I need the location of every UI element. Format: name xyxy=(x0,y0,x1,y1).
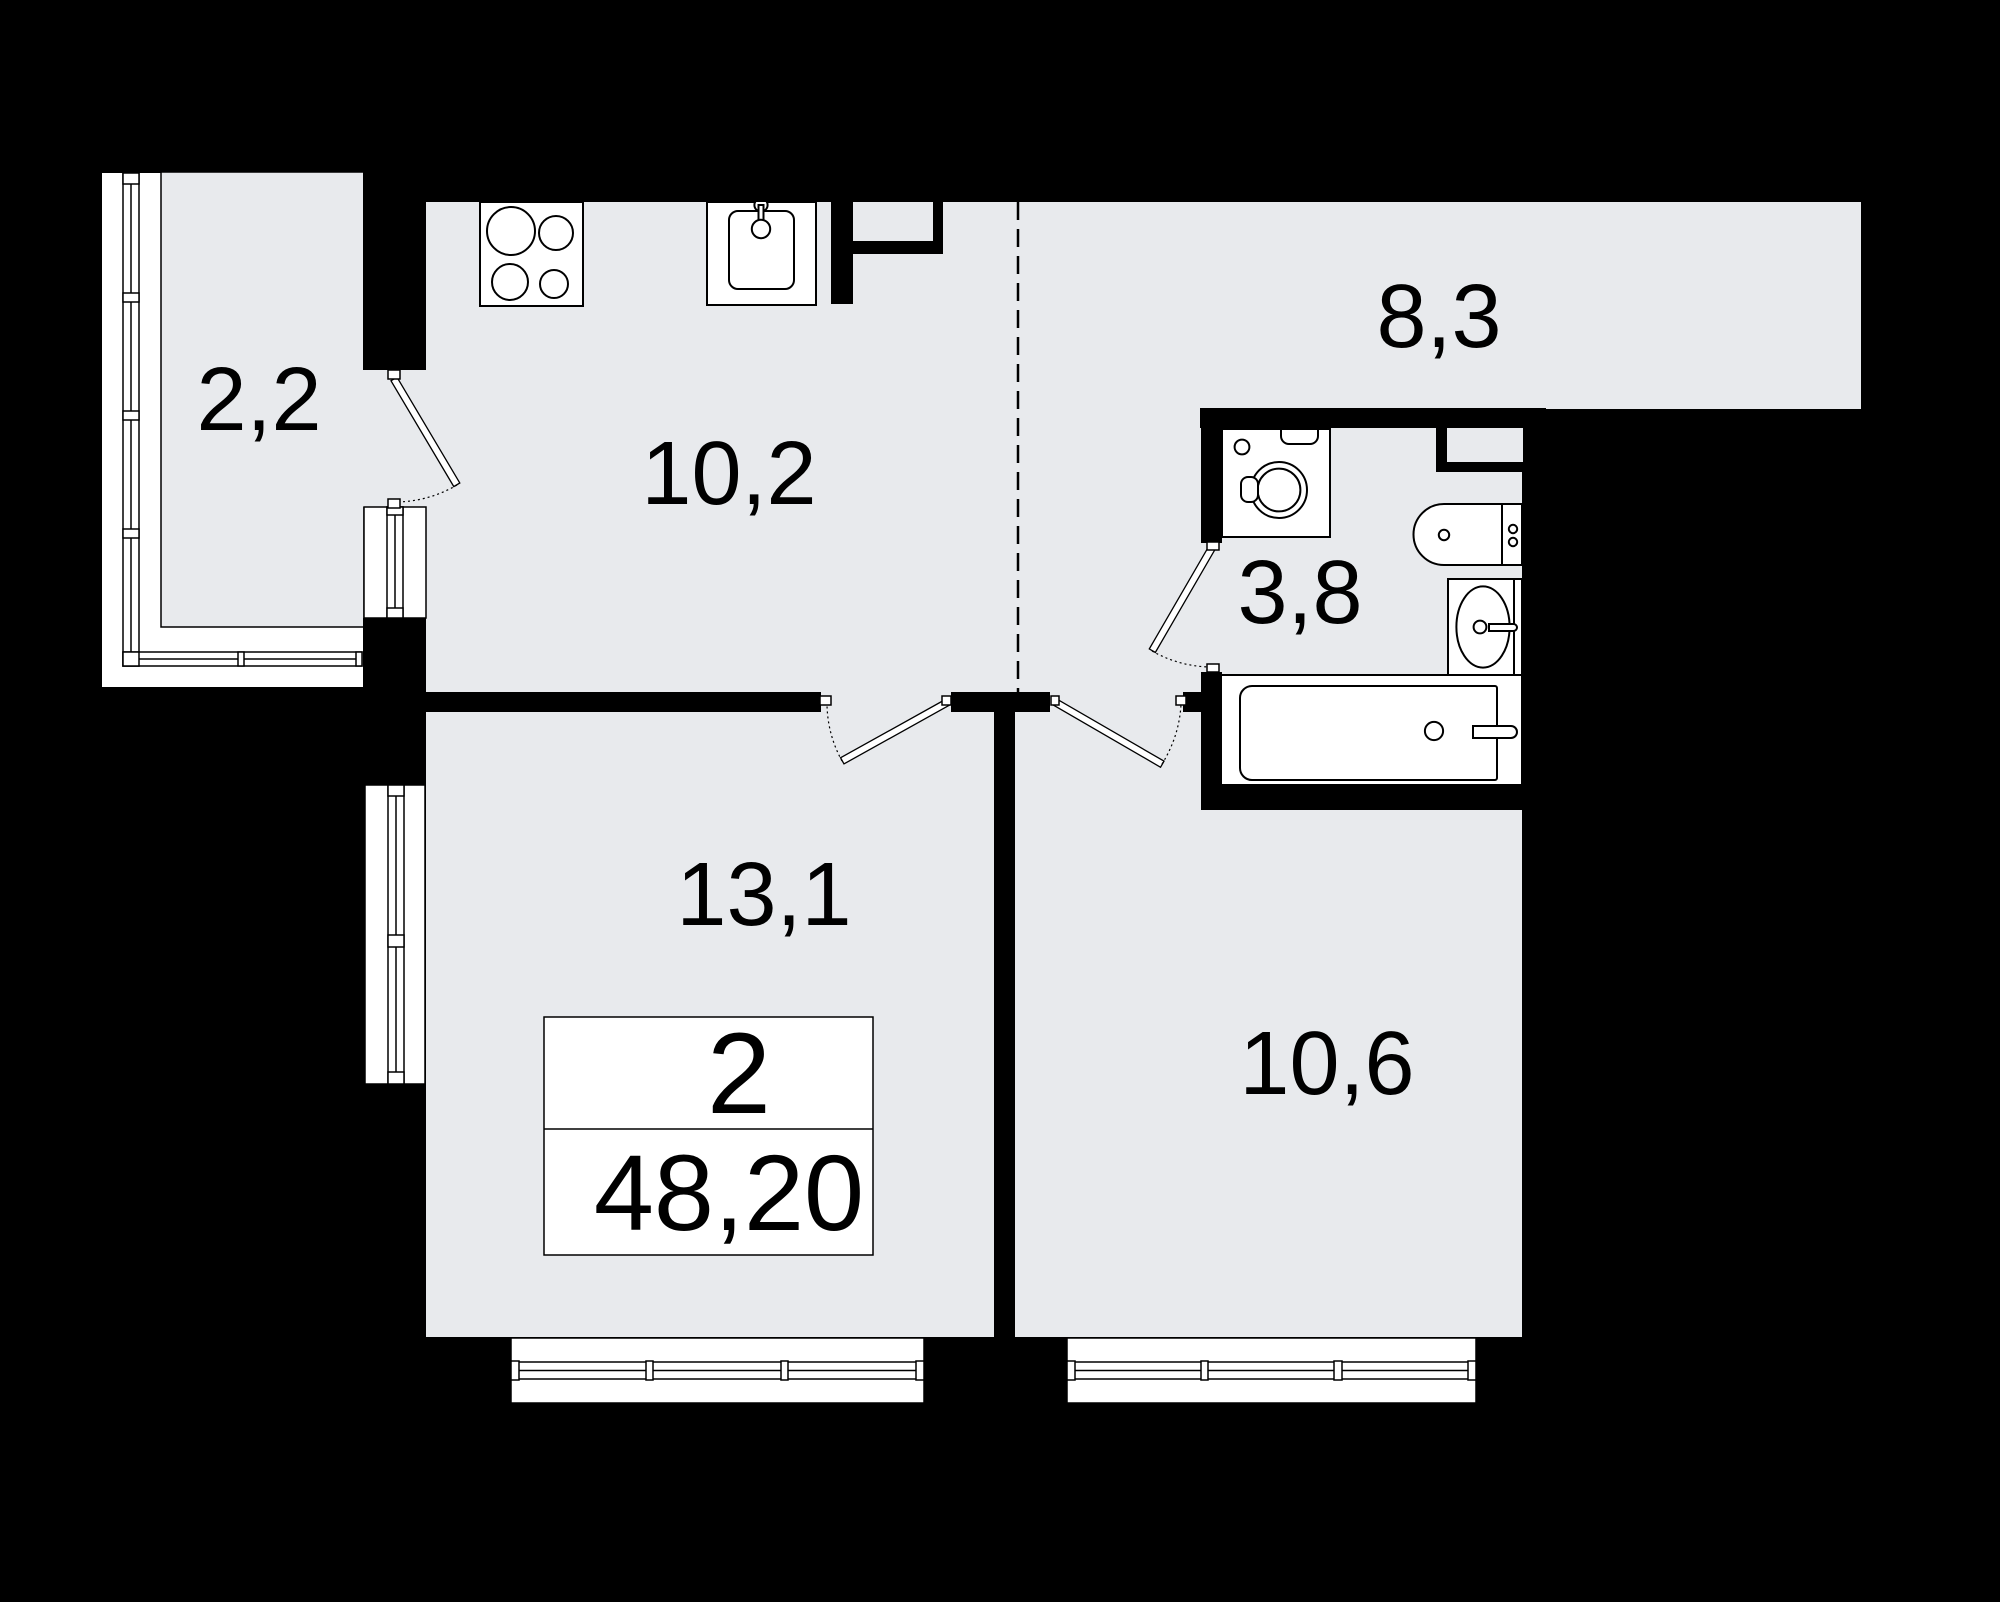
svg-text:10,6: 10,6 xyxy=(1239,1014,1414,1114)
svg-text:2: 2 xyxy=(707,1010,771,1138)
svg-text:8,3: 8,3 xyxy=(1376,267,1501,367)
svg-text:3,8: 3,8 xyxy=(1237,543,1362,643)
svg-text:48,20: 48,20 xyxy=(594,1132,864,1253)
svg-text:10,2: 10,2 xyxy=(641,424,816,524)
svg-text:13,1: 13,1 xyxy=(676,845,851,945)
svg-text:2,2: 2,2 xyxy=(196,350,321,450)
